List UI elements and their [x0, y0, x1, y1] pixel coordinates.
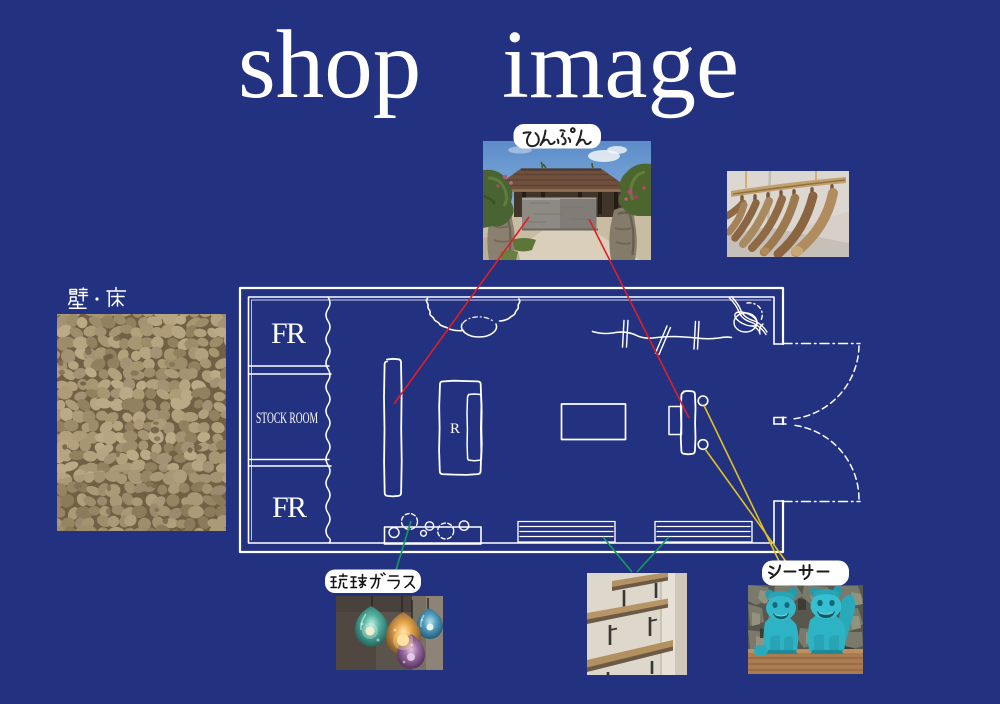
svg-text:image: image	[502, 11, 739, 118]
svg-text:FR: FR	[271, 317, 306, 350]
svg-text:STOCK ROOM: STOCK ROOM	[256, 410, 318, 427]
svg-text:FR: FR	[272, 491, 307, 524]
svg-text:shop: shop	[238, 11, 421, 118]
svg-text:R: R	[450, 421, 460, 437]
